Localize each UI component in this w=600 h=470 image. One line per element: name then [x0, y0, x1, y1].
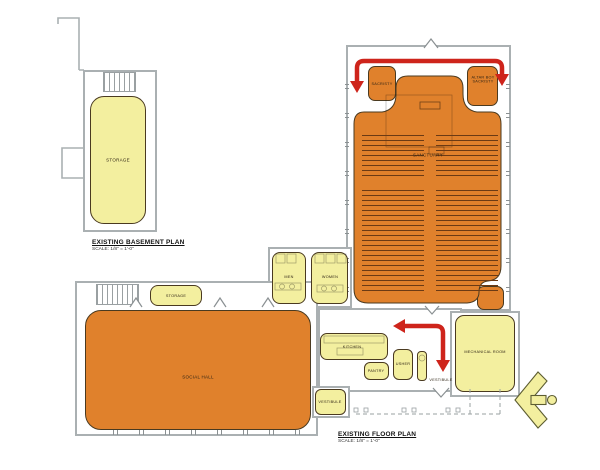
basement-scale: SCALE: 1/8" = 1'-0": [92, 247, 185, 252]
label-floor-storage: STORAGE: [166, 294, 186, 298]
label-women: WOMEN: [322, 275, 338, 279]
floor-scale: SCALE: 1/8" = 1'-0": [338, 439, 416, 444]
label-sanctuary: SANCTUARY: [413, 152, 443, 157]
label-kitchen: KITCHEN: [343, 345, 361, 349]
basement-titleblock: EXISTING BASEMENT PLAN SCALE: 1/8" = 1'-…: [92, 239, 185, 252]
label-usher: USHER: [396, 362, 411, 366]
basement-exterior-walls: [58, 18, 84, 178]
label-vestibule-side: VESTIBULE: [318, 400, 341, 404]
entry-arrow-icon: [515, 372, 557, 428]
pews-lower-left: [362, 186, 424, 294]
floor-title: EXISTING FLOOR PLAN: [338, 431, 416, 438]
canopy-dashed-line: [356, 389, 500, 414]
label-vestibule-main: VESTIBULE: [429, 378, 452, 382]
label-sacristy: SACRISTY: [372, 82, 393, 86]
canopy-columns: [354, 408, 460, 412]
pews-lower-right: [436, 186, 498, 294]
floor-titleblock: EXISTING FLOOR PLAN SCALE: 1/8" = 1'-0": [338, 431, 416, 444]
label-altar-boy-sacristy: ALTAR BOY SACRISTY: [470, 76, 496, 85]
basement-title: EXISTING BASEMENT PLAN: [92, 239, 185, 246]
plan-linework: [0, 0, 600, 470]
label-men: MEN: [284, 275, 293, 279]
floor-plan-drawing: STORAGE SACRISTY ALTAR BOY SACRISTY SANC…: [0, 0, 600, 470]
label-mechanical: MECHANICAL ROOM: [464, 350, 505, 354]
label-social-hall: SOCIAL HALL: [182, 374, 214, 379]
pews-upper-right: [436, 131, 498, 177]
label-basement-storage: STORAGE: [106, 157, 130, 162]
label-pantry: PANTRY: [368, 369, 385, 373]
